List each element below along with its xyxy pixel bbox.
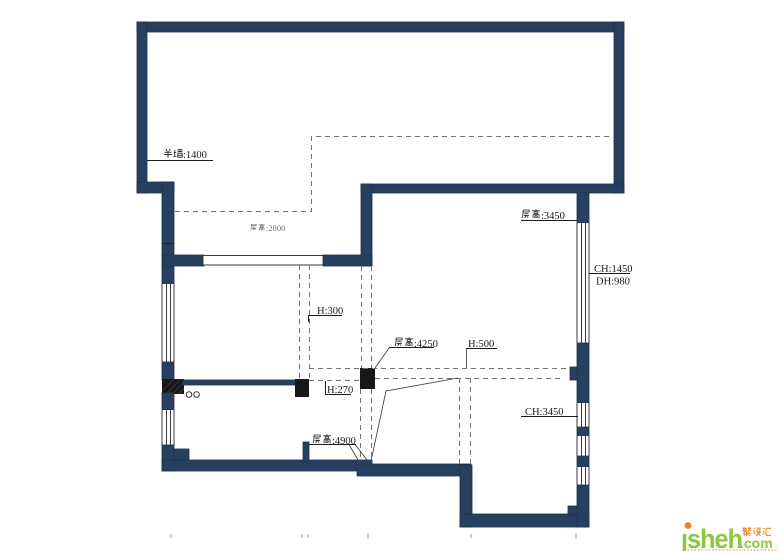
svg-text::4250: :4250 <box>414 339 438 350</box>
svg-text::1400: :1400 <box>183 150 207 161</box>
svg-text::2800: :2800 <box>266 223 285 233</box>
svg-text::4900: :4900 <box>332 436 356 447</box>
svg-text:DH:980: DH:980 <box>596 277 630 288</box>
svg-text:.com: .com <box>740 535 773 551</box>
